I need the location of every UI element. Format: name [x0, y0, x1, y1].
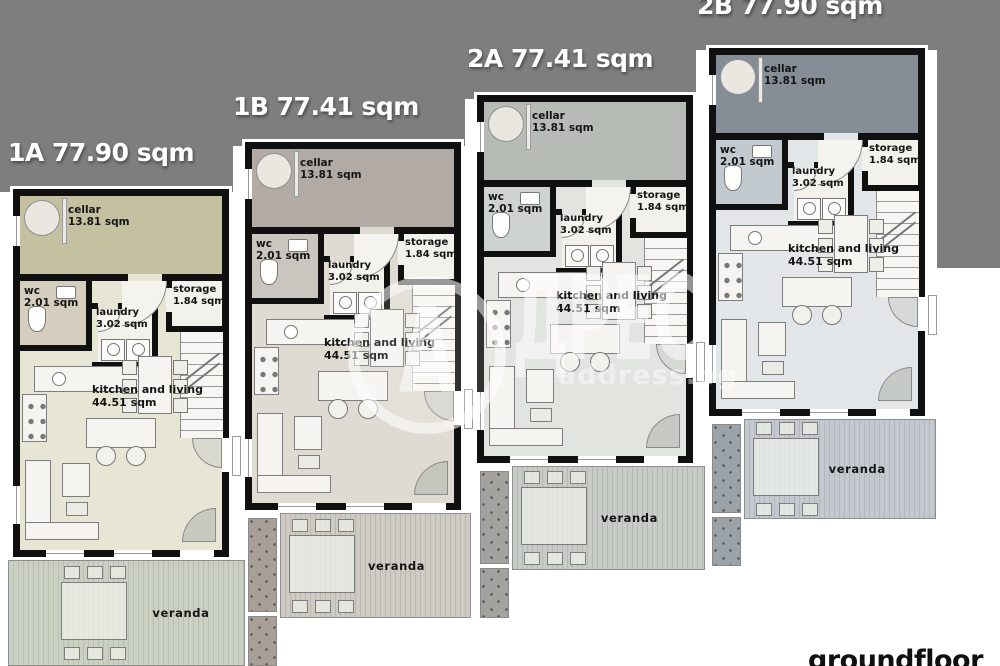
room-area: 2.01 sqm	[488, 203, 542, 215]
room-name: laundry	[560, 213, 612, 225]
patio-chair	[87, 647, 103, 660]
interior-wall	[318, 234, 324, 304]
coffee-table	[66, 502, 88, 516]
room-area: 1.84 sqm	[405, 249, 457, 261]
laundry-label: laundry 3.02 sqm	[328, 260, 380, 283]
door-opening	[128, 274, 162, 281]
room-name: storage	[173, 284, 225, 296]
dining-chair	[637, 266, 652, 281]
storage-label: storage 1.84 sqm	[869, 143, 921, 166]
entrance-opening	[686, 344, 693, 378]
window	[13, 486, 20, 524]
interior-wall	[716, 133, 918, 140]
toilet	[724, 165, 742, 191]
room-name: kitchen and living	[324, 337, 435, 350]
coffee-table	[762, 361, 784, 375]
window	[477, 392, 484, 430]
bar-stool	[560, 352, 580, 372]
patio-chair	[524, 552, 540, 565]
window	[810, 409, 848, 416]
room-name: cellar	[300, 157, 362, 169]
room-name: storage	[637, 190, 689, 202]
laundry-label: laundry 3.02 sqm	[96, 307, 148, 330]
wc-label: wc 2.01 sqm	[720, 144, 774, 168]
patio-chair	[315, 519, 331, 532]
window	[742, 409, 780, 416]
entrance-step	[464, 389, 473, 429]
room-area: 3.02 sqm	[560, 225, 612, 237]
walkway-dotted-path	[712, 424, 741, 513]
veranda-door-opening	[644, 456, 678, 463]
bar-stool	[126, 446, 146, 466]
toilet	[260, 259, 278, 285]
unit-title: 1B 77.41 sqm	[233, 92, 419, 121]
window	[477, 122, 484, 152]
unit-title: 1A 77.90 sqm	[8, 138, 194, 167]
bar-stool	[358, 399, 378, 419]
building-outline: cellar 13.81 sqm wc 2.01 sqm laundry 3.0…	[10, 186, 232, 560]
walkway-dotted-path	[712, 517, 741, 566]
laundry-label: laundry 3.02 sqm	[792, 166, 844, 189]
room-name: laundry	[792, 166, 844, 178]
patio-chair	[292, 519, 308, 532]
veranda-door-opening	[412, 503, 446, 510]
veranda: veranda	[744, 419, 936, 519]
building-outline: cellar 13.81 sqm wc 2.01 sqm laundry 3.0…	[474, 92, 696, 466]
room-name: wc	[720, 144, 774, 156]
patio-chair	[110, 566, 126, 579]
room-area: 1.84 sqm	[869, 155, 921, 167]
room-name: wc	[24, 285, 78, 297]
kitchen-sink	[284, 325, 298, 339]
window	[114, 550, 152, 557]
window	[46, 550, 84, 557]
cellar-door-leaf	[294, 151, 299, 197]
unit-title: 2B 77.90 sqm	[697, 0, 883, 20]
walkway-dotted-path	[480, 568, 509, 618]
walkway-dotted-path	[248, 518, 277, 612]
room-area: 3.02 sqm	[328, 272, 380, 284]
sofa	[25, 522, 99, 540]
laundry-label: laundry 3.02 sqm	[560, 213, 612, 236]
sofa	[257, 475, 331, 493]
toilet	[492, 212, 510, 238]
entrance-opening	[222, 438, 229, 472]
living-label: kitchen and living 44.51 sqm	[556, 290, 667, 315]
room-name: kitchen and living	[788, 243, 899, 256]
walkway-dotted-path	[480, 471, 509, 564]
washing-machine	[797, 198, 821, 220]
veranda-label: veranda	[601, 511, 658, 525]
dining-chair	[173, 360, 188, 375]
bar-stool	[590, 352, 610, 372]
interior-wall	[252, 227, 454, 234]
cellar-label: cellar 13.81 sqm	[764, 63, 826, 87]
kitchen-island	[550, 324, 620, 354]
dining-chair	[122, 360, 137, 375]
window	[278, 503, 316, 510]
entrance-opening	[454, 391, 461, 425]
room-area: 44.51 sqm	[788, 256, 899, 269]
armchair	[526, 369, 554, 403]
storage-label: storage 1.84 sqm	[405, 237, 457, 260]
kitchen-island	[86, 418, 156, 448]
sofa	[489, 428, 563, 446]
veranda-label: veranda	[152, 606, 209, 620]
room-area: 44.51 sqm	[92, 397, 203, 410]
patio-chair	[338, 519, 354, 532]
coffee-table	[298, 455, 320, 469]
veranda: veranda	[512, 466, 705, 570]
room-name: cellar	[764, 63, 826, 75]
room-area: 13.81 sqm	[68, 216, 130, 228]
window	[245, 439, 252, 477]
room-area: 13.81 sqm	[532, 122, 594, 134]
door-opening	[862, 147, 868, 171]
room-area: 2.01 sqm	[720, 156, 774, 168]
floorplan-canvas: 1A 77.90 sqm	[0, 0, 1000, 666]
kitchen-island	[318, 371, 388, 401]
dining-chair	[405, 313, 420, 328]
bar-stool	[328, 399, 348, 419]
living-label: kitchen and living 44.51 sqm	[324, 337, 435, 362]
room-area: 1.84 sqm	[173, 296, 225, 308]
interior-wall	[716, 204, 788, 210]
washing-machine	[565, 245, 589, 267]
patio-set	[61, 566, 129, 660]
patio-chair	[756, 503, 772, 516]
patio-chair	[292, 600, 308, 613]
kitchen-sink	[748, 231, 762, 245]
interior-wall	[252, 298, 324, 304]
window	[346, 503, 384, 510]
building-outline: cellar 13.81 sqm wc 2.01 sqm laundry 3.0…	[242, 139, 464, 513]
unit-title: 2A 77.41 sqm	[467, 44, 653, 73]
room-name: laundry	[328, 260, 380, 272]
room-area: 13.81 sqm	[764, 75, 826, 87]
cellar-door-leaf	[758, 57, 763, 103]
veranda-label: veranda	[368, 559, 425, 573]
patio-chair	[110, 647, 126, 660]
backdrop-step	[233, 0, 465, 146]
walkway-dotted-path	[248, 616, 277, 666]
patio-chair	[87, 566, 103, 579]
room-area: 3.02 sqm	[792, 178, 844, 190]
wc-label: wc 2.01 sqm	[488, 191, 542, 215]
cellar-door-leaf	[526, 104, 531, 150]
patio-chair	[338, 600, 354, 613]
interior-wall	[86, 281, 92, 351]
room-area: 44.51 sqm	[324, 350, 435, 363]
patio-set	[521, 471, 589, 565]
room-area: 1.84 sqm	[637, 202, 689, 214]
patio-chair	[547, 471, 563, 484]
door-opening	[630, 194, 636, 218]
room-name: storage	[405, 237, 457, 249]
patio-chair	[64, 566, 80, 579]
window	[13, 216, 20, 246]
door-opening	[592, 180, 626, 187]
door-opening	[166, 288, 172, 312]
door-opening	[398, 241, 404, 265]
entrance-step	[232, 436, 241, 476]
patio-chair	[802, 422, 818, 435]
washing-machine	[333, 292, 357, 314]
washing-machine	[101, 339, 125, 361]
kitchen-sink	[52, 372, 66, 386]
armchair	[62, 463, 90, 497]
entrance-opening	[918, 297, 925, 331]
building-outline: cellar 13.81 sqm wc 2.01 sqm laundry 3.0…	[706, 45, 928, 419]
window	[709, 345, 716, 383]
patio-chair	[779, 422, 795, 435]
floor-name-label: groundfloor	[808, 645, 983, 666]
patio-set	[289, 519, 357, 613]
dining-chair	[586, 266, 601, 281]
living-label: kitchen and living 44.51 sqm	[92, 384, 203, 409]
bar-stool	[792, 305, 812, 325]
armchair	[294, 416, 322, 450]
window	[578, 456, 616, 463]
bar-stool	[822, 305, 842, 325]
patio-chair	[547, 552, 563, 565]
patio-chair	[756, 422, 772, 435]
veranda: veranda	[280, 513, 471, 618]
room-area: 2.01 sqm	[256, 250, 310, 262]
patio-chair	[64, 647, 80, 660]
stove	[486, 300, 511, 348]
backdrop-step	[937, 0, 1000, 268]
cellar-label: cellar 13.81 sqm	[300, 157, 362, 181]
room-name: kitchen and living	[92, 384, 203, 397]
room-name: laundry	[96, 307, 148, 319]
window	[245, 169, 252, 199]
stove	[718, 253, 743, 301]
room-name: wc	[256, 238, 310, 250]
wc-label: wc 2.01 sqm	[256, 238, 310, 262]
room-area: 13.81 sqm	[300, 169, 362, 181]
interior-wall	[550, 187, 556, 257]
patio-chair	[570, 471, 586, 484]
room-name: storage	[869, 143, 921, 155]
patio-chair	[315, 600, 331, 613]
kitchen-sink	[516, 278, 530, 292]
veranda-door-opening	[180, 550, 214, 557]
patio-chair	[779, 503, 795, 516]
room-area: 3.02 sqm	[96, 319, 148, 331]
interior-wall	[484, 180, 686, 187]
patio-table	[521, 487, 587, 545]
round-fixture	[24, 200, 60, 236]
coffee-table	[530, 408, 552, 422]
toilet	[28, 306, 46, 332]
round-fixture	[256, 153, 292, 189]
interior-wall	[484, 251, 556, 257]
interior-wall	[20, 274, 222, 281]
entrance-step	[928, 295, 937, 335]
patio-table	[753, 438, 819, 496]
interior-wall	[782, 140, 788, 210]
bar-stool	[96, 446, 116, 466]
wc-label: wc 2.01 sqm	[24, 285, 78, 309]
patio-chair	[524, 471, 540, 484]
dining-chair	[818, 219, 833, 234]
storage-label: storage 1.84 sqm	[173, 284, 225, 307]
window	[709, 75, 716, 105]
cellar-label: cellar 13.81 sqm	[68, 204, 130, 228]
door-opening	[824, 133, 858, 140]
entrance-step	[696, 342, 705, 382]
patio-table	[289, 535, 355, 593]
stove	[254, 347, 279, 395]
armchair	[758, 322, 786, 356]
sofa	[721, 381, 795, 399]
round-fixture	[720, 59, 756, 95]
patio-table	[61, 582, 127, 640]
veranda: veranda	[8, 560, 245, 666]
storage-label: storage 1.84 sqm	[637, 190, 689, 213]
room-name: wc	[488, 191, 542, 203]
interior-wall	[20, 345, 92, 351]
patio-set	[753, 422, 821, 516]
room-area: 2.01 sqm	[24, 297, 78, 309]
round-fixture	[488, 106, 524, 142]
veranda-door-opening	[876, 409, 910, 416]
room-name: kitchen and living	[556, 290, 667, 303]
stove	[22, 394, 47, 442]
dining-chair	[354, 313, 369, 328]
door-opening	[360, 227, 394, 234]
room-name: cellar	[68, 204, 130, 216]
patio-chair	[802, 503, 818, 516]
cellar-door-leaf	[62, 198, 67, 244]
dining-chair	[869, 219, 884, 234]
room-area: 44.51 sqm	[556, 303, 667, 316]
window	[510, 456, 548, 463]
cellar-label: cellar 13.81 sqm	[532, 110, 594, 134]
kitchen-island	[782, 277, 852, 307]
room-name: cellar	[532, 110, 594, 122]
living-label: kitchen and living 44.51 sqm	[788, 243, 899, 268]
veranda-label: veranda	[829, 462, 886, 476]
patio-chair	[570, 552, 586, 565]
